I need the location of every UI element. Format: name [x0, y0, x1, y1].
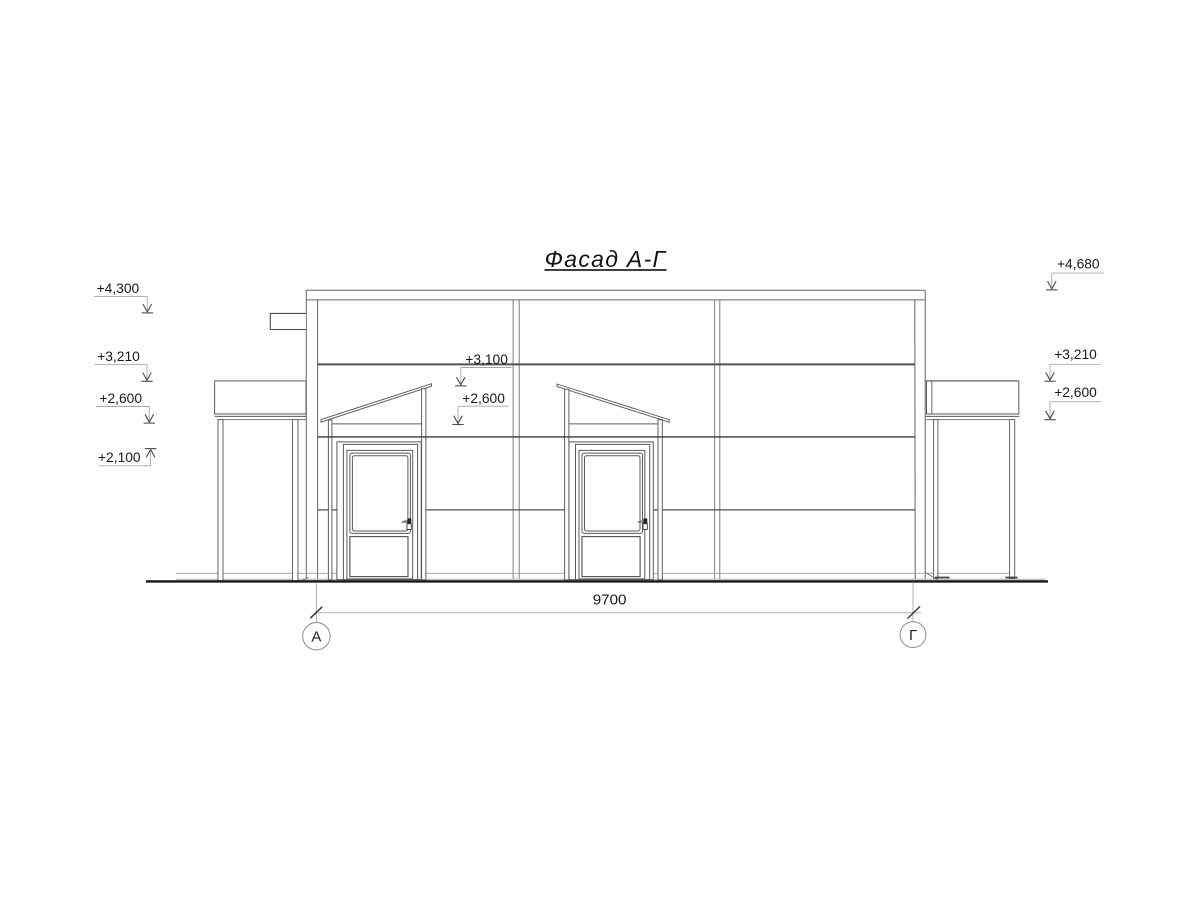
- svg-text:+3,100: +3,100: [465, 352, 508, 367]
- svg-text:+3,210: +3,210: [97, 349, 140, 364]
- svg-text:+4,680: +4,680: [1057, 257, 1100, 272]
- svg-text:+2,600: +2,600: [1054, 385, 1097, 400]
- svg-text:А: А: [311, 629, 321, 646]
- svg-text:Г: Г: [909, 627, 917, 644]
- svg-text:9700: 9700: [593, 592, 627, 609]
- svg-text:Фасад А-Г: Фасад А-Г: [545, 246, 667, 272]
- svg-text:+4,300: +4,300: [97, 281, 140, 296]
- svg-text:+2,600: +2,600: [462, 391, 505, 406]
- svg-text:+3,210: +3,210: [1054, 347, 1097, 362]
- svg-text:+2,100: +2,100: [98, 450, 141, 465]
- svg-text:+2,600: +2,600: [99, 391, 142, 406]
